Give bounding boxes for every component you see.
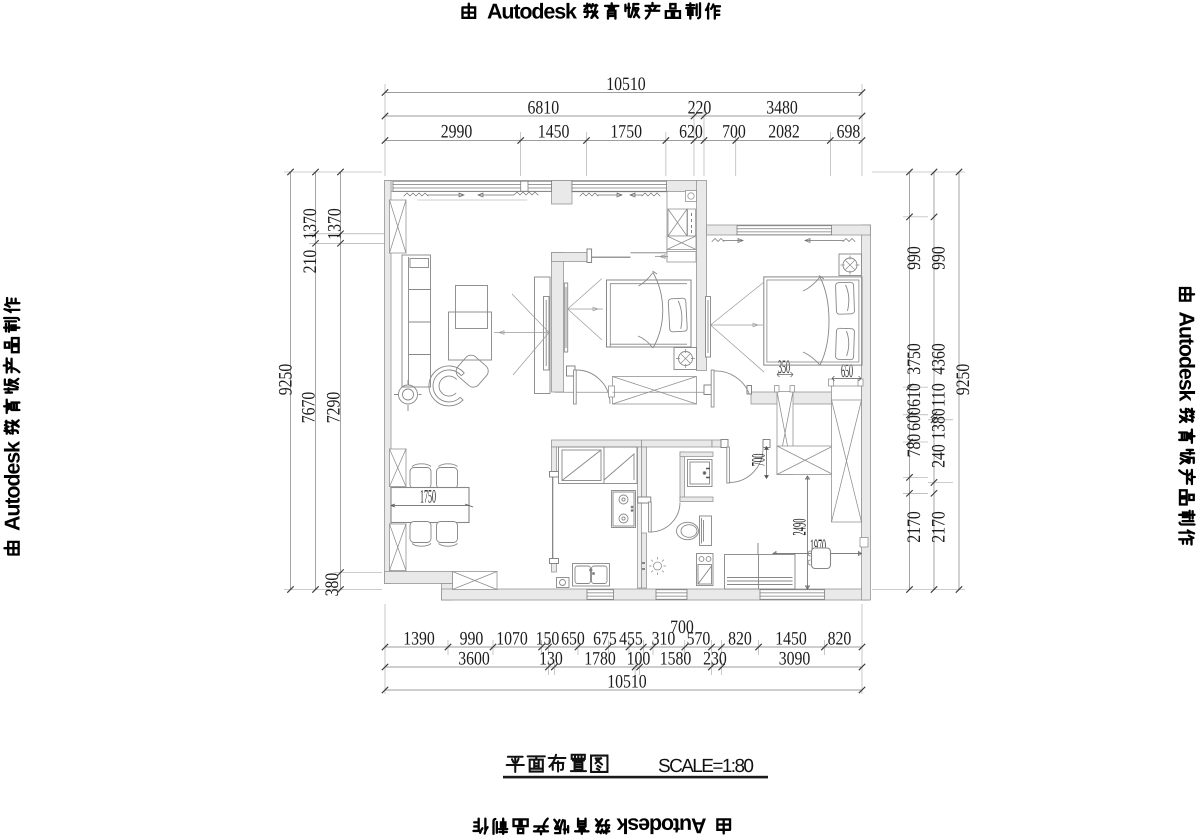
svg-text:700: 700 — [722, 122, 746, 143]
svg-text:6810: 6810 — [528, 98, 560, 119]
svg-text:698: 698 — [837, 122, 861, 143]
svg-text:1370: 1370 — [300, 208, 321, 240]
svg-text:Autodesk: Autodesk — [0, 441, 24, 531]
svg-text:700: 700 — [749, 454, 770, 467]
svg-text:1750: 1750 — [420, 487, 436, 508]
svg-text:820: 820 — [728, 629, 752, 650]
svg-text:100: 100 — [627, 649, 651, 670]
svg-text:7670: 7670 — [299, 392, 320, 424]
svg-text:350: 350 — [778, 357, 790, 378]
svg-text:820: 820 — [828, 629, 852, 650]
svg-text:650: 650 — [561, 629, 585, 650]
svg-text:700: 700 — [670, 617, 694, 638]
svg-text:780: 780 — [904, 434, 925, 458]
svg-text:1450: 1450 — [775, 629, 807, 650]
svg-text:3480: 3480 — [766, 98, 798, 119]
svg-text:1450: 1450 — [538, 122, 570, 143]
svg-text:230: 230 — [703, 649, 727, 670]
svg-text:Autodesk: Autodesk — [487, 0, 577, 24]
svg-text:1380: 1380 — [929, 408, 950, 440]
svg-text:1580: 1580 — [660, 649, 692, 670]
svg-text:3600: 3600 — [458, 649, 490, 670]
svg-text:990: 990 — [904, 246, 925, 270]
svg-text:10510: 10510 — [606, 74, 646, 95]
svg-text:130: 130 — [539, 649, 563, 670]
svg-text:1070: 1070 — [496, 629, 528, 650]
svg-text:9250: 9250 — [276, 364, 297, 396]
svg-text:3750: 3750 — [904, 343, 925, 375]
svg-text:2990: 2990 — [441, 122, 473, 143]
svg-text:620: 620 — [679, 122, 703, 143]
svg-text:990: 990 — [460, 629, 484, 650]
svg-text:650: 650 — [841, 361, 853, 382]
svg-text:220: 220 — [688, 98, 712, 119]
svg-text:610: 610 — [904, 383, 925, 407]
svg-text:2490: 2490 — [790, 519, 811, 536]
svg-text:240: 240 — [929, 444, 950, 468]
svg-text:1750: 1750 — [610, 122, 642, 143]
svg-text:1780: 1780 — [584, 649, 616, 670]
svg-text:10510: 10510 — [607, 672, 647, 693]
svg-text:Autodesk: Autodesk — [616, 814, 706, 838]
svg-text:SCALE=1:80: SCALE=1:80 — [658, 756, 754, 777]
svg-text:1370: 1370 — [325, 208, 346, 240]
svg-text:7290: 7290 — [324, 392, 345, 424]
svg-text:455: 455 — [619, 629, 643, 650]
svg-text:2170: 2170 — [904, 511, 925, 543]
svg-text:Autodesk: Autodesk — [1174, 312, 1198, 402]
svg-text:2082: 2082 — [768, 122, 800, 143]
svg-text:1390: 1390 — [403, 629, 435, 650]
svg-text:9250: 9250 — [953, 364, 974, 396]
svg-text:4360: 4360 — [929, 343, 950, 375]
svg-text:210: 210 — [300, 250, 321, 274]
svg-text:600: 600 — [904, 407, 925, 431]
svg-text:110: 110 — [929, 383, 950, 407]
svg-text:990: 990 — [929, 246, 950, 270]
svg-text:2170: 2170 — [929, 511, 950, 543]
svg-text:150: 150 — [536, 629, 560, 650]
svg-text:675: 675 — [593, 629, 617, 650]
svg-text:3090: 3090 — [779, 649, 811, 670]
svg-text:380: 380 — [322, 573, 343, 597]
